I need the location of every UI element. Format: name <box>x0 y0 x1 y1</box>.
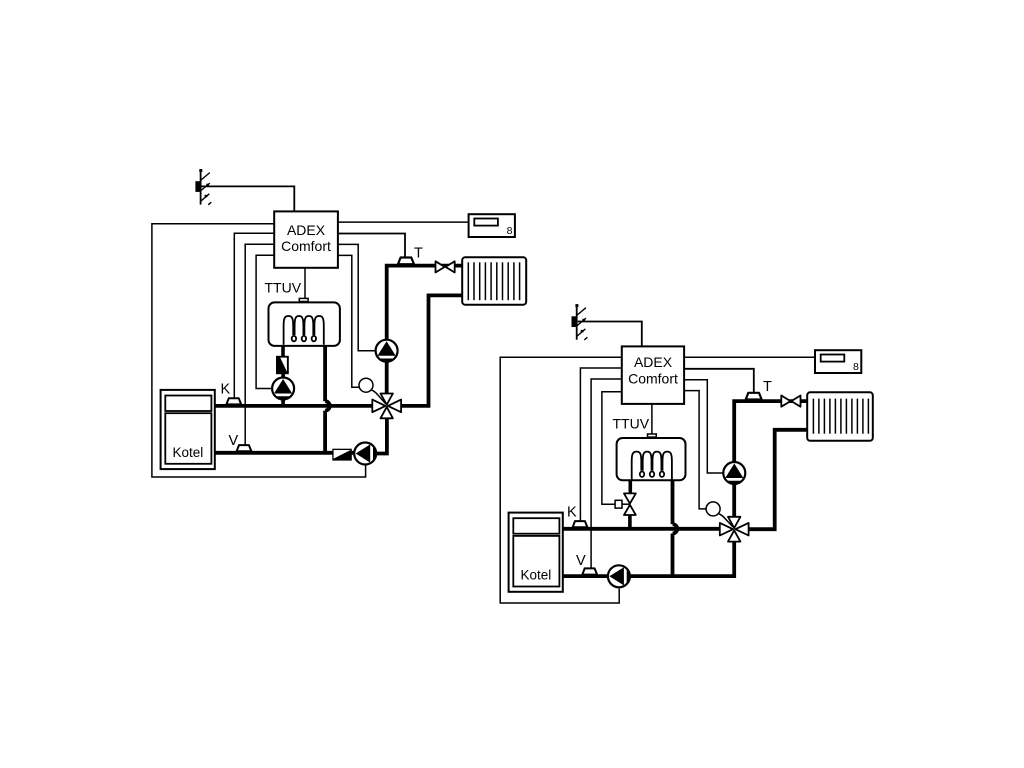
svg-text:T: T <box>414 245 423 261</box>
svg-text:ADEX: ADEX <box>634 354 673 370</box>
svg-text:TTUV: TTUV <box>613 416 650 432</box>
svg-text:K: K <box>221 382 231 398</box>
svg-text:Comfort: Comfort <box>281 238 331 254</box>
svg-text:V: V <box>576 553 586 569</box>
svg-text:TTUV: TTUV <box>265 280 302 296</box>
svg-text:T: T <box>763 379 772 395</box>
svg-text:ADEX: ADEX <box>287 222 326 238</box>
svg-text:V: V <box>229 433 239 449</box>
svg-text:Comfort: Comfort <box>628 371 678 387</box>
svg-text:K: K <box>567 505 577 521</box>
